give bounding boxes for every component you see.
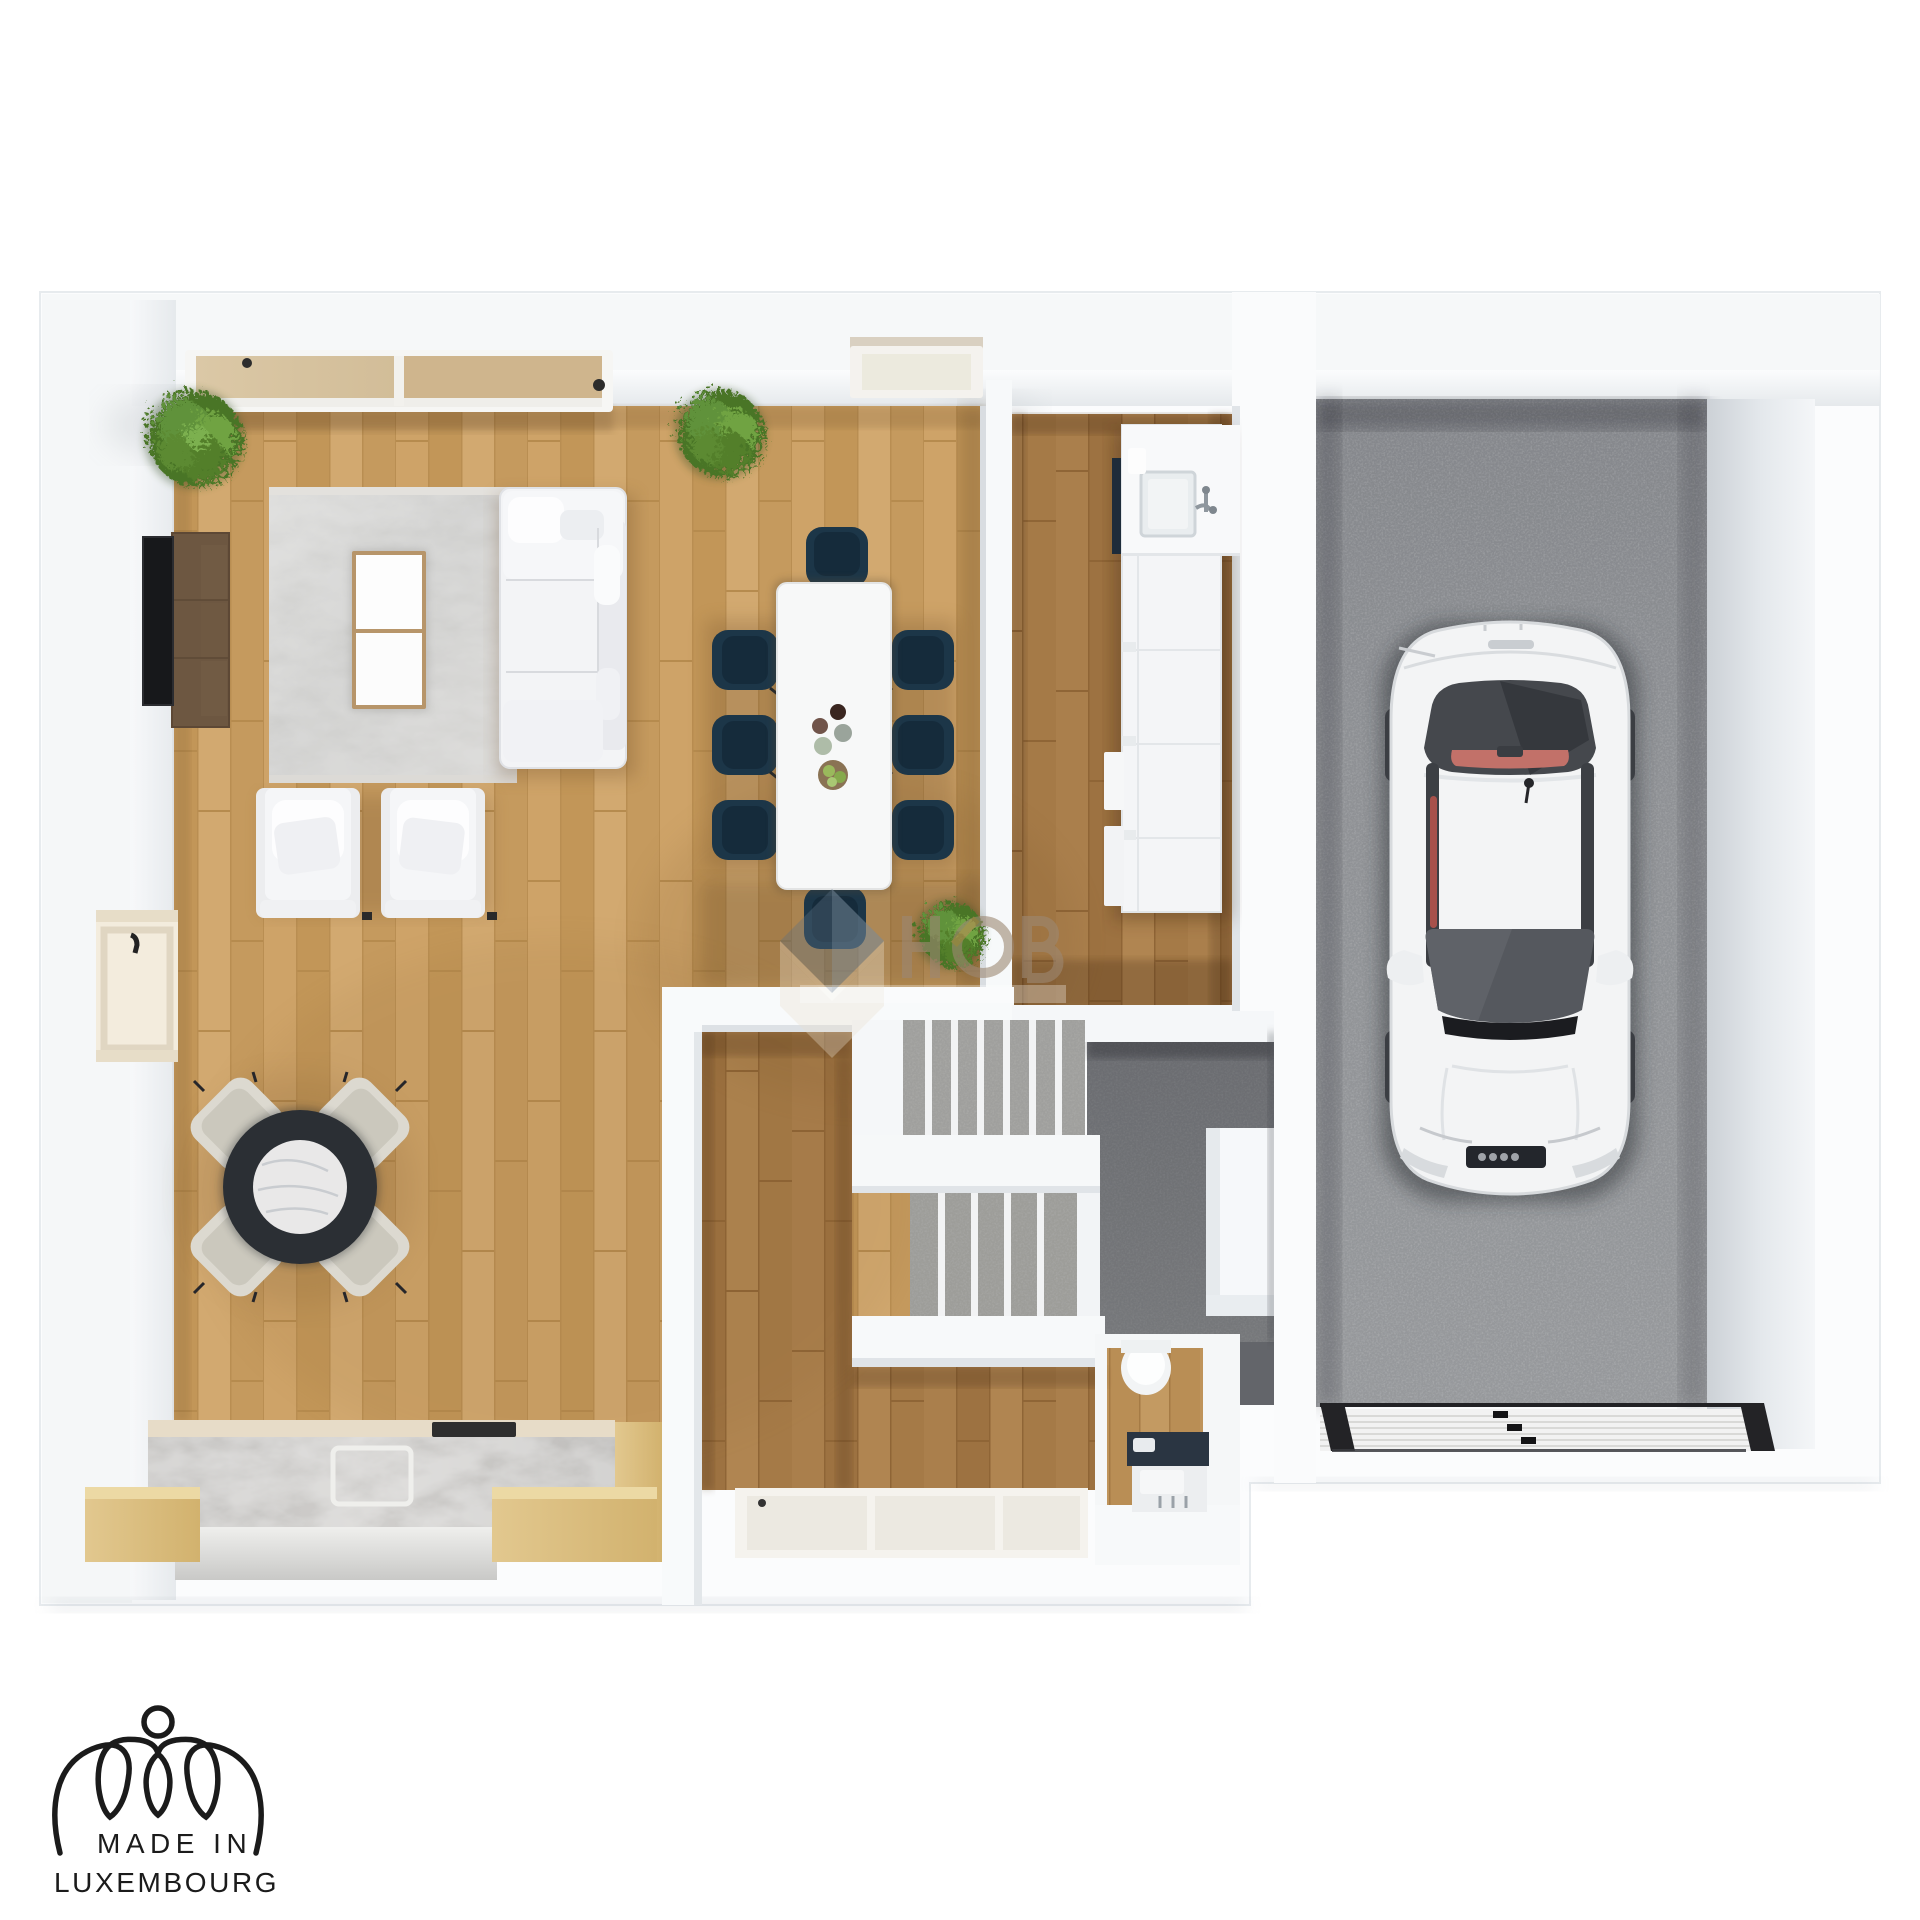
svg-text:LUXEMBOURG: LUXEMBOURG <box>54 1867 279 1898</box>
svg-text:MADE IN: MADE IN <box>97 1828 252 1859</box>
